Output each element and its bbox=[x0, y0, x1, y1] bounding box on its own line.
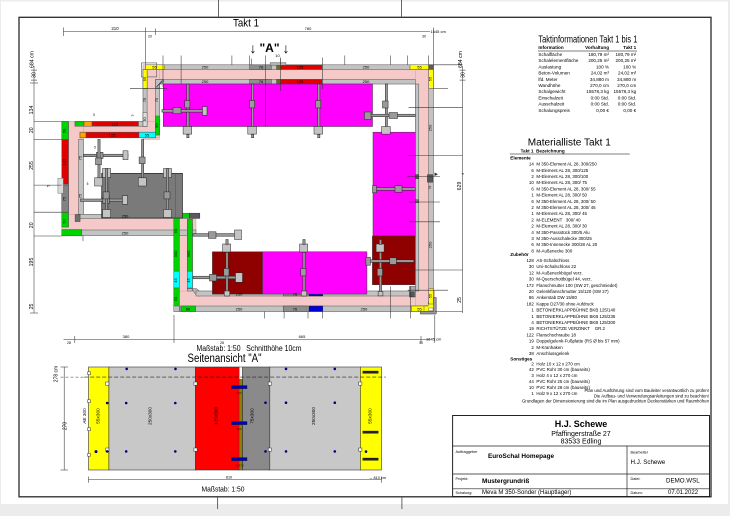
svg-text:Sonstiges: Sonstiges bbox=[510, 356, 532, 361]
svg-text:128: 128 bbox=[526, 258, 534, 263]
svg-text:810: 810 bbox=[226, 475, 232, 479]
svg-text:45: 45 bbox=[173, 278, 178, 283]
svg-text:30: 30 bbox=[142, 117, 147, 122]
svg-text:M-Element AL 28, 300/125: M-Element AL 28, 300/125 bbox=[536, 168, 588, 173]
svg-text:5: 5 bbox=[47, 185, 51, 187]
svg-text:180,79 m²: 180,79 m² bbox=[616, 52, 637, 57]
svg-text:Plan und Ausführung sind vom B: Plan und Ausführung sind vom Bauleiter v… bbox=[585, 388, 709, 393]
svg-text:125: 125 bbox=[297, 64, 304, 69]
svg-text:50: 50 bbox=[154, 123, 159, 128]
svg-text:1645 cm: 1645 cm bbox=[426, 337, 442, 342]
svg-text:200,25 m²: 200,25 m² bbox=[588, 58, 609, 63]
svg-text:50: 50 bbox=[186, 307, 191, 312]
svg-text:Vorhaltung: Vorhaltung bbox=[585, 45, 609, 50]
svg-text:76: 76 bbox=[293, 307, 298, 312]
svg-text:5: 5 bbox=[87, 182, 89, 186]
svg-text:M 350-Innenecke 300/28 AL 20: M 350-Innenecke 300/28 AL 20 bbox=[536, 242, 597, 247]
svg-text:125: 125 bbox=[112, 122, 119, 127]
svg-text:Maßstab: 1:50: Maßstab: 1:50 bbox=[202, 485, 245, 494]
svg-text:38: 38 bbox=[529, 351, 534, 356]
svg-text:Anschlussgelenk: Anschlussgelenk bbox=[536, 351, 570, 356]
svg-text:30: 30 bbox=[422, 35, 426, 39]
svg-text:50: 50 bbox=[173, 228, 178, 233]
svg-text:75: 75 bbox=[154, 97, 159, 102]
svg-text:5: 5 bbox=[94, 146, 96, 150]
svg-text:Ankerstab DW 15/80: Ankerstab DW 15/80 bbox=[536, 295, 577, 300]
svg-text:lfd. Meter: lfd. Meter bbox=[538, 77, 558, 82]
svg-text:20: 20 bbox=[148, 35, 152, 39]
svg-text:684 cm: 684 cm bbox=[30, 51, 36, 68]
svg-text:45: 45 bbox=[186, 278, 191, 283]
svg-text:665: 665 bbox=[299, 334, 306, 339]
svg-text:122: 122 bbox=[526, 332, 534, 337]
svg-text:M 350-Element AL 28, 300/ 50: M 350-Element AL 28, 300/ 50 bbox=[536, 199, 596, 204]
svg-text:Holz 4 x 12 x 270 cm: Holz 4 x 12 x 270 cm bbox=[536, 373, 577, 378]
svg-text:250: 250 bbox=[427, 241, 432, 248]
svg-text:AE 300: AE 300 bbox=[82, 408, 87, 424]
svg-text:Materialliste Takt 1: Materialliste Takt 1 bbox=[528, 137, 611, 148]
svg-text:Kappe D27/30 ohne Aufdruck: Kappe D27/30 ohne Aufdruck bbox=[536, 301, 594, 306]
svg-text:Grundlagen der Dimensionierung: Grundlagen der Dimensionierung sind die … bbox=[522, 399, 710, 404]
svg-text:Maßstab: 1:50 Schnitthöhe 10: Maßstab: 1:50 Schnitthöhe 10cm bbox=[197, 344, 302, 353]
svg-text:Taktinformationen Takt 1 bis: Taktinformationen Takt 1 bis 1 bbox=[538, 35, 637, 46]
svg-text:15578,3 kg: 15578,3 kg bbox=[613, 89, 636, 94]
svg-text:125: 125 bbox=[297, 79, 304, 84]
svg-text:10: 10 bbox=[275, 53, 280, 58]
svg-text:RICHTSTÜTZE VERZINKT GR.2: RICHTSTÜTZE VERZINKT GR.2 bbox=[536, 326, 605, 331]
svg-text:Datum:: Datum: bbox=[631, 491, 643, 495]
svg-text:Schalgewicht: Schalgewicht bbox=[538, 89, 566, 94]
svg-text:55: 55 bbox=[417, 307, 422, 312]
svg-text:Takt 1 Bezeichnung: Takt 1 Bezeichnung bbox=[521, 149, 565, 154]
svg-text:PVC Rohr 30 cm (bauseits): PVC Rohr 30 cm (bauseits) bbox=[536, 367, 590, 372]
svg-text:250: 250 bbox=[202, 79, 209, 84]
svg-text:55x300: 55x300 bbox=[96, 408, 101, 424]
svg-text:Information: Information bbox=[538, 45, 563, 50]
svg-text:250: 250 bbox=[236, 307, 243, 312]
svg-text:300: 300 bbox=[237, 427, 242, 431]
svg-text:H.J. Schewe: H.J. Schewe bbox=[631, 459, 666, 466]
svg-text:28: 28 bbox=[67, 341, 71, 345]
svg-text:Schalung:: Schalung: bbox=[456, 491, 473, 495]
svg-text:34,880 m: 34,880 m bbox=[590, 77, 609, 82]
svg-text:20: 20 bbox=[529, 289, 534, 294]
svg-text:0:00 Std.: 0:00 Std. bbox=[591, 95, 609, 100]
svg-text:55: 55 bbox=[152, 64, 157, 69]
svg-text:↓: ↓ bbox=[250, 40, 257, 56]
svg-text:M-Querschottbügel 44, verz.: M-Querschottbügel 44, verz. bbox=[536, 277, 591, 282]
svg-text:100 %: 100 % bbox=[623, 64, 636, 69]
svg-text:M 350-Element AL 28, 300/250: M 350-Element AL 28, 300/250 bbox=[536, 162, 597, 167]
svg-text:780: 780 bbox=[305, 26, 312, 31]
svg-text:19: 19 bbox=[529, 326, 534, 331]
svg-text:10: 10 bbox=[529, 385, 534, 390]
svg-text:4: 4 bbox=[461, 173, 465, 175]
svg-text:20: 20 bbox=[29, 127, 35, 133]
svg-text:75: 75 bbox=[78, 193, 83, 198]
svg-text:300: 300 bbox=[237, 391, 242, 395]
svg-text:Wandhöhe: Wandhöhe bbox=[538, 83, 560, 88]
svg-text:180,79 m²: 180,79 m² bbox=[588, 52, 609, 57]
svg-text:125x300: 125x300 bbox=[214, 407, 219, 425]
svg-text:M-Element AL 28, 300/ 45: M-Element AL 28, 300/ 45 bbox=[536, 211, 587, 216]
svg-text:200,25 m²: 200,25 m² bbox=[616, 58, 637, 63]
svg-text:34,880 m: 34,880 m bbox=[617, 77, 636, 82]
svg-text:1645 cm: 1645 cm bbox=[431, 29, 447, 34]
svg-text:250: 250 bbox=[202, 64, 209, 69]
svg-text:Takt 1: Takt 1 bbox=[623, 45, 636, 50]
svg-text:EuroSchal Homepage: EuroSchal Homepage bbox=[488, 453, 554, 460]
svg-text:0:00 Std.: 0:00 Std. bbox=[591, 102, 609, 107]
svg-text:24,02 m³: 24,02 m³ bbox=[591, 71, 610, 76]
svg-text:Schalfläche: Schalfläche bbox=[538, 52, 562, 57]
svg-text:M 350-Ausschalecke 300/25: M 350-Ausschalecke 300/25 bbox=[536, 236, 592, 241]
svg-text:270: 270 bbox=[63, 422, 69, 431]
svg-text:30: 30 bbox=[529, 277, 534, 282]
svg-text:250: 250 bbox=[363, 79, 370, 84]
svg-text:Flanschschraube 18: Flanschschraube 18 bbox=[536, 332, 576, 337]
svg-text:10: 10 bbox=[529, 180, 534, 185]
svg-text:M-Außeneckbügel verz.: M-Außeneckbügel verz. bbox=[536, 270, 582, 275]
svg-text:42: 42 bbox=[529, 367, 534, 372]
svg-text:55x300: 55x300 bbox=[368, 408, 373, 424]
svg-text:76: 76 bbox=[428, 186, 432, 190]
svg-text:55: 55 bbox=[427, 293, 432, 298]
svg-text:55: 55 bbox=[427, 76, 432, 81]
svg-text:0,00 €: 0,00 € bbox=[623, 108, 636, 113]
svg-text:380: 380 bbox=[123, 334, 130, 339]
svg-text:250: 250 bbox=[236, 291, 243, 296]
svg-text:75: 75 bbox=[142, 97, 147, 102]
svg-text:125: 125 bbox=[109, 133, 116, 138]
svg-text:Doppelgelenk-Fußplatte (RS Ø b: Doppelgelenk-Fußplatte (RS Ø bis 57 mm) bbox=[536, 339, 620, 344]
svg-text:44: 44 bbox=[529, 379, 534, 384]
svg-text:BETONIERKLAPPBÜHNE BKB 125/300: BETONIERKLAPPBÜHNE BKB 125/300 bbox=[536, 320, 616, 325]
svg-text:250: 250 bbox=[427, 124, 432, 131]
svg-text:Datei:: Datei: bbox=[631, 477, 641, 481]
svg-text:14: 14 bbox=[529, 162, 534, 167]
svg-text:Takt 1: Takt 1 bbox=[233, 18, 259, 30]
svg-text:30: 30 bbox=[461, 72, 467, 78]
svg-text:Ausschalzeit: Ausschalzeit bbox=[538, 102, 565, 107]
svg-text:300: 300 bbox=[173, 250, 178, 257]
svg-text:255: 255 bbox=[29, 161, 35, 170]
svg-text:172: 172 bbox=[526, 283, 534, 288]
svg-text:250: 250 bbox=[363, 64, 370, 69]
svg-text:55: 55 bbox=[145, 133, 150, 138]
svg-text:Meva M 350-Sonder (Hauptlager): Meva M 350-Sonder (Hauptlager) bbox=[482, 490, 571, 496]
svg-text:Einschalzeit: Einschalzeit bbox=[538, 95, 563, 100]
svg-text:25: 25 bbox=[457, 297, 463, 303]
svg-text:→ 810 cm: → 810 cm bbox=[369, 476, 386, 480]
svg-text:55: 55 bbox=[142, 76, 147, 81]
svg-text:Bearbeiter: Bearbeiter bbox=[631, 451, 649, 455]
svg-text:Projekt:: Projekt: bbox=[456, 477, 469, 481]
svg-text:125: 125 bbox=[62, 158, 67, 165]
svg-text:278 cm: 278 cm bbox=[54, 366, 60, 382]
svg-text:M-Kranhaken: M-Kranhaken bbox=[536, 345, 563, 350]
svg-text:AS-Schalschloss: AS-Schalschloss bbox=[536, 258, 570, 263]
svg-text:182: 182 bbox=[526, 301, 534, 306]
svg-text:76: 76 bbox=[259, 79, 264, 84]
svg-text:270,0 cm: 270,0 cm bbox=[590, 83, 609, 88]
svg-text:76: 76 bbox=[259, 64, 264, 69]
svg-text:75: 75 bbox=[78, 155, 83, 160]
svg-text:M-Außenecke 300: M-Außenecke 300 bbox=[536, 248, 572, 253]
svg-text:629: 629 bbox=[457, 182, 463, 191]
svg-text:86: 86 bbox=[529, 295, 534, 300]
svg-text:M 350-Element AL 28, 300/ 45: M 350-Element AL 28, 300/ 45 bbox=[536, 205, 596, 210]
svg-text:∅370: ∅370 bbox=[236, 464, 244, 468]
svg-text:M-Element AL 28, 300/100: M-Element AL 28, 300/100 bbox=[536, 174, 588, 179]
svg-text:0:00 Std.: 0:00 Std. bbox=[618, 102, 636, 107]
svg-text:50: 50 bbox=[62, 128, 67, 133]
svg-text:Auslastung: Auslastung bbox=[538, 64, 561, 69]
svg-text:684 cm: 684 cm bbox=[458, 51, 464, 68]
svg-text:Gelenkflanschmutter 15/120 (SW: Gelenkflanschmutter 15/120 (SW 27) bbox=[536, 289, 609, 294]
svg-text:Auftraggeber: Auftraggeber bbox=[456, 450, 479, 454]
svg-text:210: 210 bbox=[111, 26, 119, 31]
svg-text:250x300: 250x300 bbox=[148, 407, 153, 425]
svg-text:250: 250 bbox=[361, 307, 368, 312]
svg-text:Seitenansicht "A": Seitenansicht "A" bbox=[188, 353, 262, 365]
svg-text:Beton-Volumen: Beton-Volumen bbox=[538, 71, 570, 76]
svg-text:Flanschmutter 100 (SW 27, gesc: Flanschmutter 100 (SW 27, geschmiedet) bbox=[536, 283, 618, 288]
svg-text:M-ELEMENT 300/ 40: M-ELEMENT 300/ 40 bbox=[536, 217, 581, 222]
svg-text:20: 20 bbox=[29, 222, 35, 228]
svg-text:Uni-Schalschloss 22: Uni-Schalschloss 22 bbox=[536, 264, 576, 269]
svg-text:PVC Rohr 28 cm (bauseits): PVC Rohr 28 cm (bauseits) bbox=[536, 385, 590, 390]
svg-text:134: 134 bbox=[29, 106, 35, 115]
svg-text:M-Element AL 28, 300/ 50: M-Element AL 28, 300/ 50 bbox=[536, 193, 587, 198]
svg-text:50: 50 bbox=[62, 219, 67, 224]
svg-text:75: 75 bbox=[61, 196, 66, 201]
svg-text:↓: ↓ bbox=[283, 40, 290, 56]
svg-text:25: 25 bbox=[29, 304, 35, 310]
svg-text:12: 12 bbox=[529, 270, 534, 275]
svg-text:M-Element AL 28, 300/ 30: M-Element AL 28, 300/ 30 bbox=[536, 224, 587, 229]
svg-text:M 350-Passstück 300/5 Alu: M 350-Passstück 300/5 Alu bbox=[536, 230, 590, 235]
svg-text:BETONIERKLAPPBÜHNE BKB 125/140: BETONIERKLAPPBÜHNE BKB 125/140 bbox=[536, 308, 616, 313]
svg-text:75x300: 75x300 bbox=[250, 408, 255, 424]
svg-text:250: 250 bbox=[122, 214, 129, 219]
svg-text:15578,3 kg: 15578,3 kg bbox=[586, 89, 609, 94]
svg-text:Mustergrundriß: Mustergrundriß bbox=[482, 478, 529, 485]
svg-text:07.01.2022: 07.01.2022 bbox=[668, 490, 699, 496]
svg-text:100 %: 100 % bbox=[596, 64, 609, 69]
svg-text:0:00 Std.: 0:00 Std. bbox=[618, 95, 636, 100]
svg-text:M 350-Element AL 28, 300/ 55: M 350-Element AL 28, 300/ 55 bbox=[536, 186, 596, 191]
svg-text:Schalelementfläche: Schalelementfläche bbox=[538, 58, 579, 63]
svg-text:Holz 10 x 12 x 270 cm: Holz 10 x 12 x 270 cm bbox=[536, 361, 580, 366]
svg-text:50: 50 bbox=[173, 296, 178, 301]
svg-text:9: 9 bbox=[131, 114, 135, 116]
svg-text:M-Element AL 28, 300/ 75: M-Element AL 28, 300/ 75 bbox=[536, 180, 587, 185]
svg-text:30: 30 bbox=[32, 72, 38, 78]
svg-text:19: 19 bbox=[529, 339, 534, 344]
svg-text:0,00 €: 0,00 € bbox=[596, 108, 609, 113]
svg-text:BETONIERKLAPPBÜHNE BKB 125/235: BETONIERKLAPPBÜHNE BKB 125/235 bbox=[536, 314, 616, 319]
svg-text:30: 30 bbox=[529, 264, 534, 269]
svg-text:H.J. Schewe: H.J. Schewe bbox=[555, 419, 608, 429]
svg-text:Elemente: Elemente bbox=[510, 155, 531, 160]
svg-text:Die Aufbau- und Verwendungsanl: Die Aufbau- und Verwendungsanleitungen s… bbox=[594, 393, 709, 398]
svg-text:Holz 9 x 12 x 270 cm: Holz 9 x 12 x 270 cm bbox=[536, 391, 577, 396]
svg-text:Pfaffingerstraße 27: Pfaffingerstraße 27 bbox=[551, 431, 611, 438]
svg-text:300: 300 bbox=[186, 250, 191, 257]
svg-text:55: 55 bbox=[417, 64, 422, 69]
svg-text:Schalungspreis: Schalungspreis bbox=[538, 108, 570, 113]
svg-text:24,02 m³: 24,02 m³ bbox=[618, 71, 637, 76]
svg-text:270,0 cm: 270,0 cm bbox=[617, 83, 636, 88]
svg-text:30: 30 bbox=[419, 341, 423, 345]
svg-text:DEMO.WSL: DEMO.WSL bbox=[666, 477, 700, 484]
svg-text:76: 76 bbox=[293, 291, 298, 296]
svg-text:250: 250 bbox=[122, 231, 129, 236]
svg-text:PVC Rohr 25 cm (bauseits): PVC Rohr 25 cm (bauseits) bbox=[536, 379, 590, 384]
svg-text:5: 5 bbox=[93, 113, 95, 117]
svg-text:Zubehör: Zubehör bbox=[510, 252, 529, 257]
svg-text:83533 Edling: 83533 Edling bbox=[561, 438, 602, 445]
svg-text:195: 195 bbox=[29, 258, 35, 267]
svg-text:250x300: 250x300 bbox=[311, 407, 316, 425]
